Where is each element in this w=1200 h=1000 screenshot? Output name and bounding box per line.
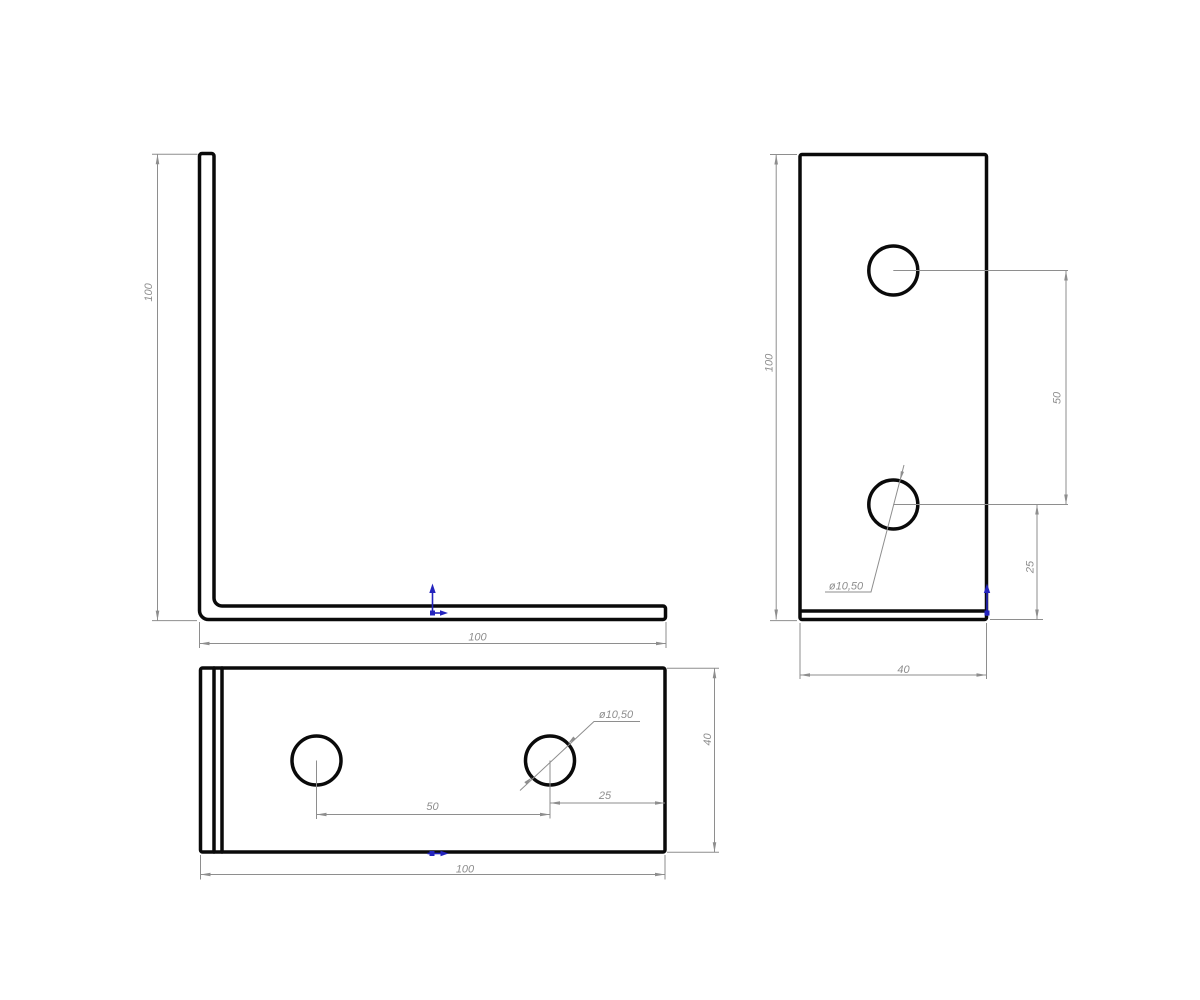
svg-text:40: 40 — [702, 733, 714, 746]
svg-text:50: 50 — [426, 801, 439, 813]
svg-text:100: 100 — [456, 863, 475, 875]
svg-text:100: 100 — [143, 282, 155, 301]
svg-text:ø10,50: ø10,50 — [599, 709, 634, 721]
svg-text:ø10,50: ø10,50 — [829, 580, 864, 592]
svg-text:100: 100 — [764, 353, 776, 372]
svg-text:25: 25 — [598, 790, 612, 802]
svg-text:40: 40 — [897, 664, 910, 676]
svg-text:100: 100 — [468, 632, 487, 644]
svg-text:50: 50 — [1052, 391, 1064, 404]
svg-text:25: 25 — [1025, 560, 1037, 574]
